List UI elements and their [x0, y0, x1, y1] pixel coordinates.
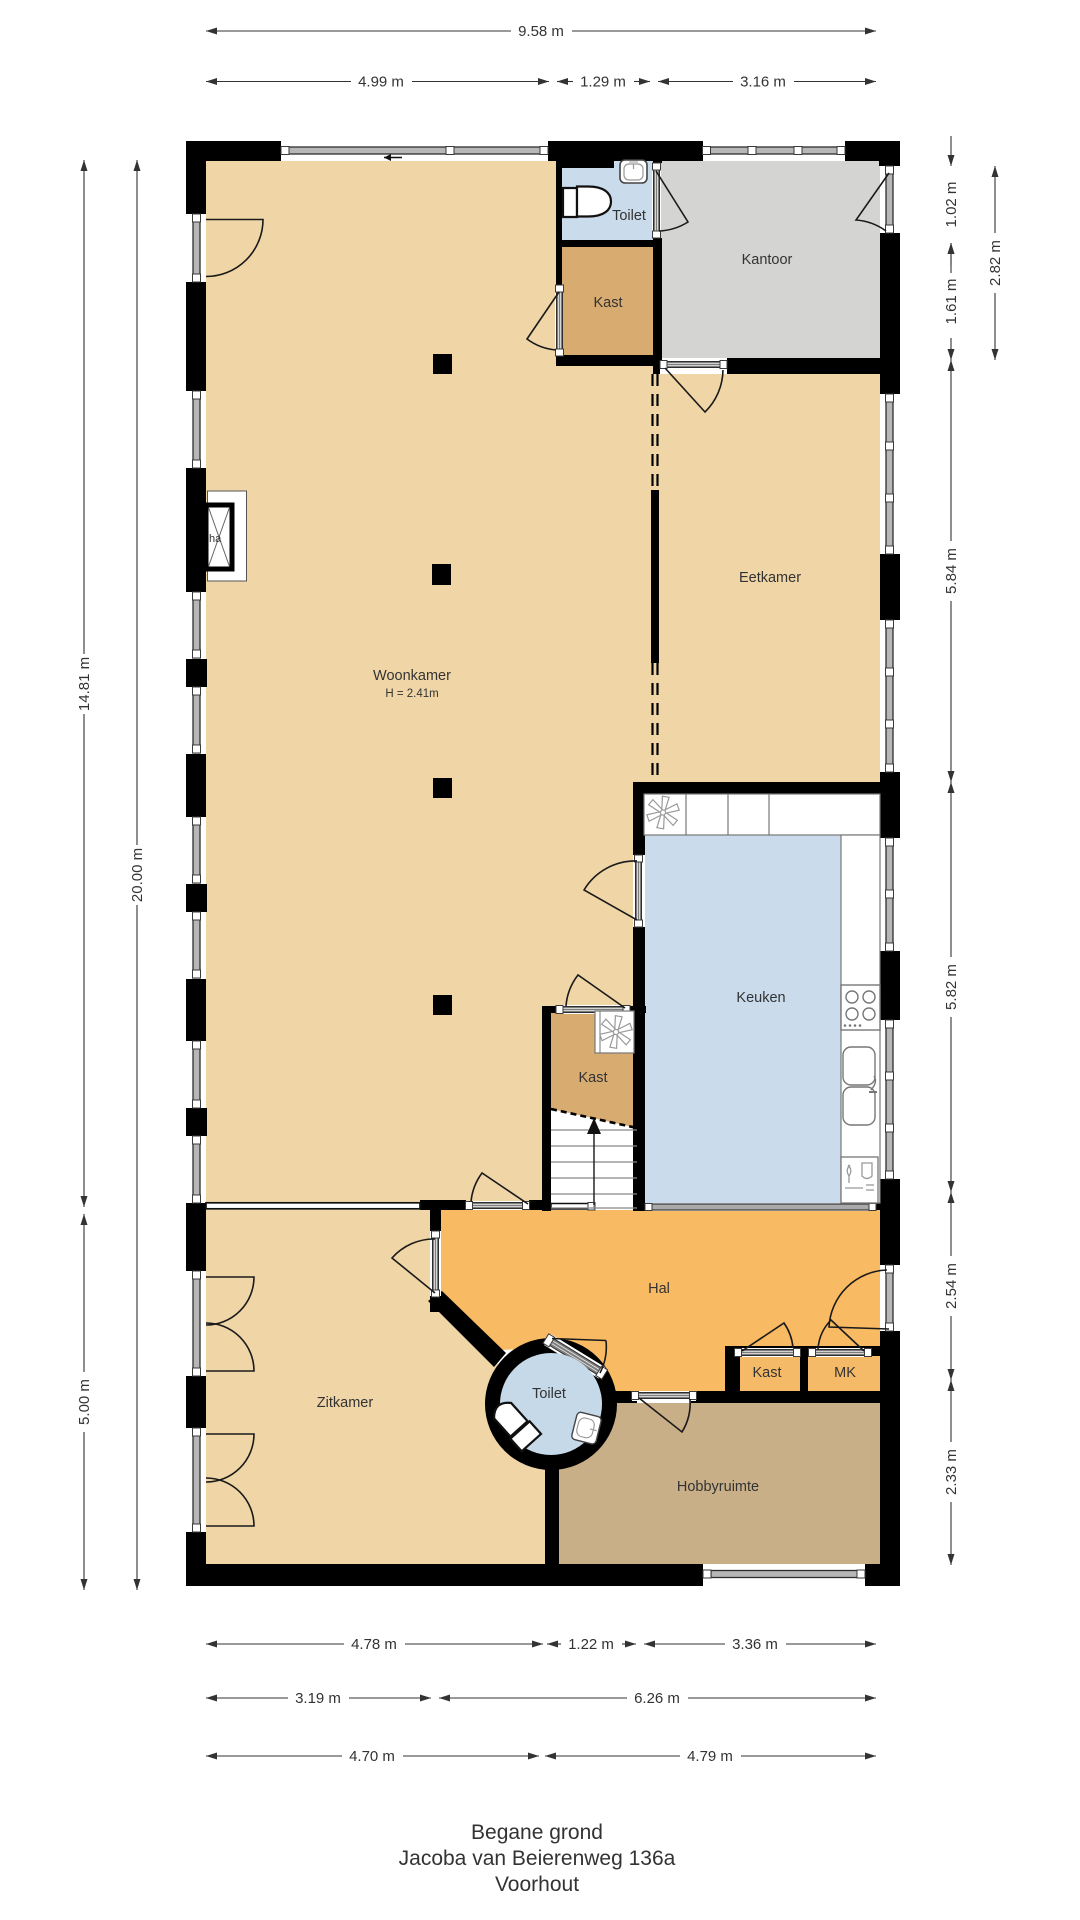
svg-text:Jacoba van Beierenweg 136a: Jacoba van Beierenweg 136a — [399, 1847, 676, 1870]
svg-text:4.70 m: 4.70 m — [349, 1748, 395, 1765]
svg-text:6.26 m: 6.26 m — [634, 1690, 680, 1707]
svg-text:Kast: Kast — [578, 1070, 607, 1086]
svg-text:Begane grond: Begane grond — [471, 1821, 603, 1844]
svg-text:1.29 m: 1.29 m — [580, 74, 626, 91]
svg-text:Hobbyruimte: Hobbyruimte — [677, 1479, 759, 1495]
svg-text:3.19 m: 3.19 m — [295, 1690, 341, 1707]
svg-text:4.78 m: 4.78 m — [351, 1636, 397, 1653]
svg-text:1.22 m: 1.22 m — [568, 1636, 614, 1653]
svg-text:Kantoor: Kantoor — [742, 252, 793, 268]
svg-text:3.36 m: 3.36 m — [732, 1636, 778, 1653]
svg-text:Kast: Kast — [593, 295, 622, 311]
svg-text:Toilet: Toilet — [612, 208, 646, 224]
svg-text:Woonkamer: Woonkamer — [373, 668, 451, 684]
svg-text:20.00 m: 20.00 m — [129, 848, 146, 902]
svg-text:9.58 m: 9.58 m — [518, 23, 564, 40]
svg-text:Eetkamer: Eetkamer — [739, 570, 801, 586]
svg-text:5.82 m: 5.82 m — [943, 964, 960, 1010]
svg-text:3.16 m: 3.16 m — [740, 74, 786, 91]
svg-text:2.82 m: 2.82 m — [987, 240, 1004, 286]
svg-text:4.99 m: 4.99 m — [358, 74, 404, 91]
svg-text:5.00 m: 5.00 m — [76, 1379, 93, 1425]
svg-text:5.84 m: 5.84 m — [943, 548, 960, 594]
svg-text:Voorhout: Voorhout — [495, 1873, 579, 1896]
svg-text:Zitkamer: Zitkamer — [317, 1395, 374, 1411]
svg-text:Kast: Kast — [752, 1365, 781, 1381]
svg-text:2.54 m: 2.54 m — [943, 1263, 960, 1309]
svg-text:H = 2.41m: H = 2.41m — [385, 688, 438, 700]
svg-text:Toilet: Toilet — [532, 1386, 566, 1402]
svg-text:2.33 m: 2.33 m — [943, 1449, 960, 1495]
svg-text:1.02 m: 1.02 m — [943, 182, 960, 228]
svg-text:MK: MK — [834, 1365, 856, 1381]
svg-text:14.81 m: 14.81 m — [76, 657, 93, 711]
svg-text:Keuken: Keuken — [736, 990, 785, 1006]
svg-text:Hal: Hal — [648, 1281, 670, 1297]
svg-text:ha: ha — [209, 533, 222, 545]
svg-text:1.61 m: 1.61 m — [943, 279, 960, 325]
svg-text:4.79 m: 4.79 m — [687, 1748, 733, 1765]
